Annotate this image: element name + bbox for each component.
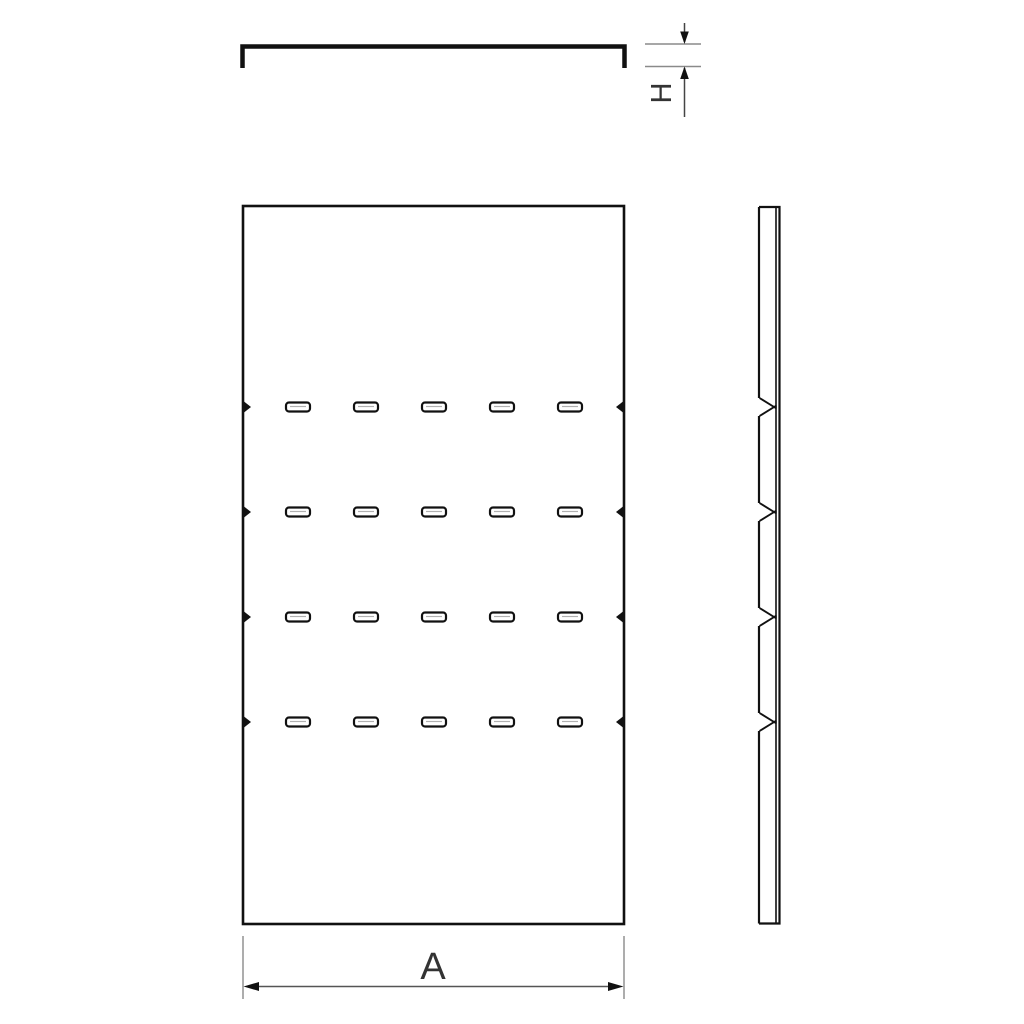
dimension-arrow-left-icon xyxy=(244,982,260,991)
cross-section-profile xyxy=(243,47,625,69)
thickness-dimension: H xyxy=(645,23,701,117)
crimp-notch-lower-line xyxy=(760,511,777,522)
side-view xyxy=(759,207,780,924)
drawing-canvas: H A xyxy=(0,0,1024,1024)
width-dimension: A xyxy=(243,936,624,999)
technical-drawing: H A xyxy=(0,0,1024,1024)
dimension-arrow-down-icon xyxy=(680,32,689,45)
width-dimension-label: A xyxy=(420,946,446,988)
cover-plate-outline xyxy=(243,206,624,924)
dimension-arrow-right-icon xyxy=(608,982,624,991)
crimp-notch-lower-line xyxy=(760,616,777,627)
crimp-notches xyxy=(760,398,777,731)
dimension-arrow-up-icon xyxy=(680,67,689,80)
cross-section-view xyxy=(243,47,625,69)
thickness-dimension-label: H xyxy=(646,83,678,104)
crimp-notch-lower-line xyxy=(760,406,777,417)
crimp-notch-lower-line xyxy=(760,721,777,732)
front-view xyxy=(243,206,624,924)
